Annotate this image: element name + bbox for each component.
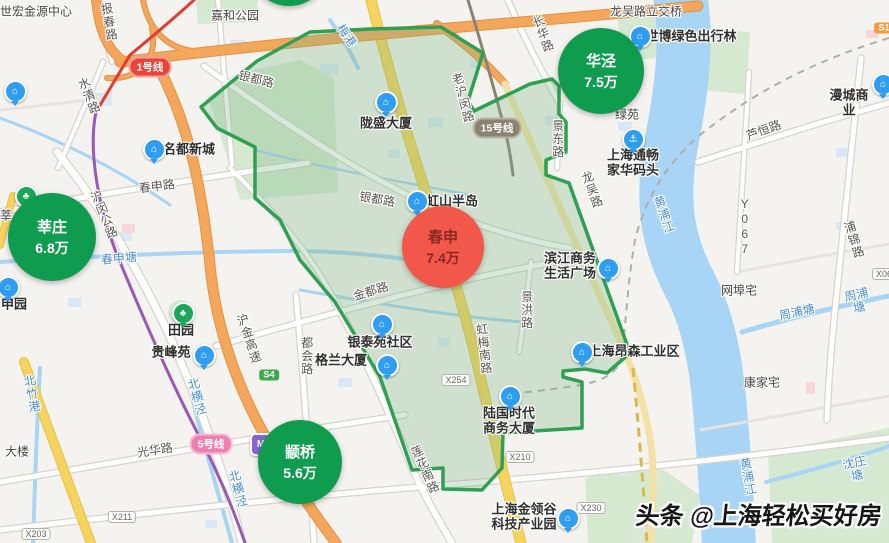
map-canvas[interactable]: 报春路水清路春申路沪闵公路银都路银都路金都路沪金高速都会路莲花南路虹梅南路景洪路… (0, 0, 889, 543)
building-glyph: ⌂ (5, 282, 11, 293)
road-number-badge: X211 (108, 511, 136, 523)
price-bubble[interactable]: 春申7.4万 (402, 206, 484, 288)
anchor-glyph: ⚓ (629, 134, 638, 145)
price-bubble[interactable]: 颛桥5.6万 (258, 420, 342, 504)
building-icon[interactable]: ⌂ (371, 313, 394, 336)
metro-line-badge: 15号线 (473, 118, 522, 139)
building-glyph: ⌂ (414, 196, 420, 207)
park-icon[interactable]: ♣ (172, 302, 195, 325)
park-glyph: ♣ (180, 308, 187, 319)
anchor-icon[interactable]: ⚓ (622, 128, 645, 151)
building-icon[interactable]: ⌂ (193, 344, 216, 367)
building-glyph: ⌂ (579, 347, 585, 358)
building-glyph: ⌂ (507, 391, 513, 402)
building-glyph: ⌂ (384, 360, 390, 371)
building-icon[interactable]: ⌂ (557, 507, 580, 530)
road-number-badge: X203 (21, 528, 50, 540)
school-icon[interactable]: ⌂ (4, 80, 27, 103)
building-glyph: ⌂ (565, 513, 571, 524)
bubble-area-name: 莘庄 (37, 216, 67, 237)
building-glyph: ⌂ (383, 97, 389, 108)
building-glyph: ⌂ (637, 31, 643, 42)
building-icon[interactable]: ⌂ (375, 91, 398, 114)
building-icon[interactable]: ⌂ (571, 341, 594, 364)
building-icon[interactable]: ⌂ (499, 385, 522, 408)
bubble-price: 7.5万 (584, 72, 617, 92)
bubble-area-name: 春申 (428, 226, 458, 247)
building-glyph: ⌂ (379, 319, 385, 330)
building-icon[interactable]: ⌂ (597, 257, 620, 280)
price-bubble[interactable]: 华泾7.5万 (558, 28, 644, 114)
building-glyph: ⌂ (201, 350, 207, 361)
school-glyph: ⌂ (12, 86, 18, 97)
expressway-badge: S4 (259, 370, 279, 381)
metro-line-badge: 5号线 (190, 434, 233, 455)
road-number-badge: X06 (872, 268, 889, 280)
metro-line-badge: 1号线 (129, 57, 172, 78)
road-number-badge: X210 (505, 451, 534, 463)
building-icon[interactable]: ⌂ (143, 138, 166, 161)
bubble-area-name: 颛桥 (285, 441, 315, 462)
bubble-price: 6.8万 (35, 238, 68, 258)
watermark: 头条 @上海轻松买好房 (634, 496, 884, 531)
price-bubble[interactable]: 莘庄6.8万 (8, 193, 96, 281)
expressway-badge: S1 (874, 23, 889, 34)
building-icon[interactable]: ⌂ (376, 354, 399, 377)
building-glyph: ⌂ (605, 263, 611, 274)
road-number-badge: X230 (576, 502, 605, 514)
building-glyph: ⌂ (880, 79, 886, 90)
building-icon[interactable]: ⌂ (0, 276, 20, 299)
bubble-price: 7.4万 (426, 248, 459, 268)
bubble-price: 5.6万 (283, 463, 316, 483)
bubble-area-name: 华泾 (586, 50, 616, 71)
building-glyph: ⌂ (151, 144, 157, 155)
road-number-badge: X254 (441, 374, 470, 386)
